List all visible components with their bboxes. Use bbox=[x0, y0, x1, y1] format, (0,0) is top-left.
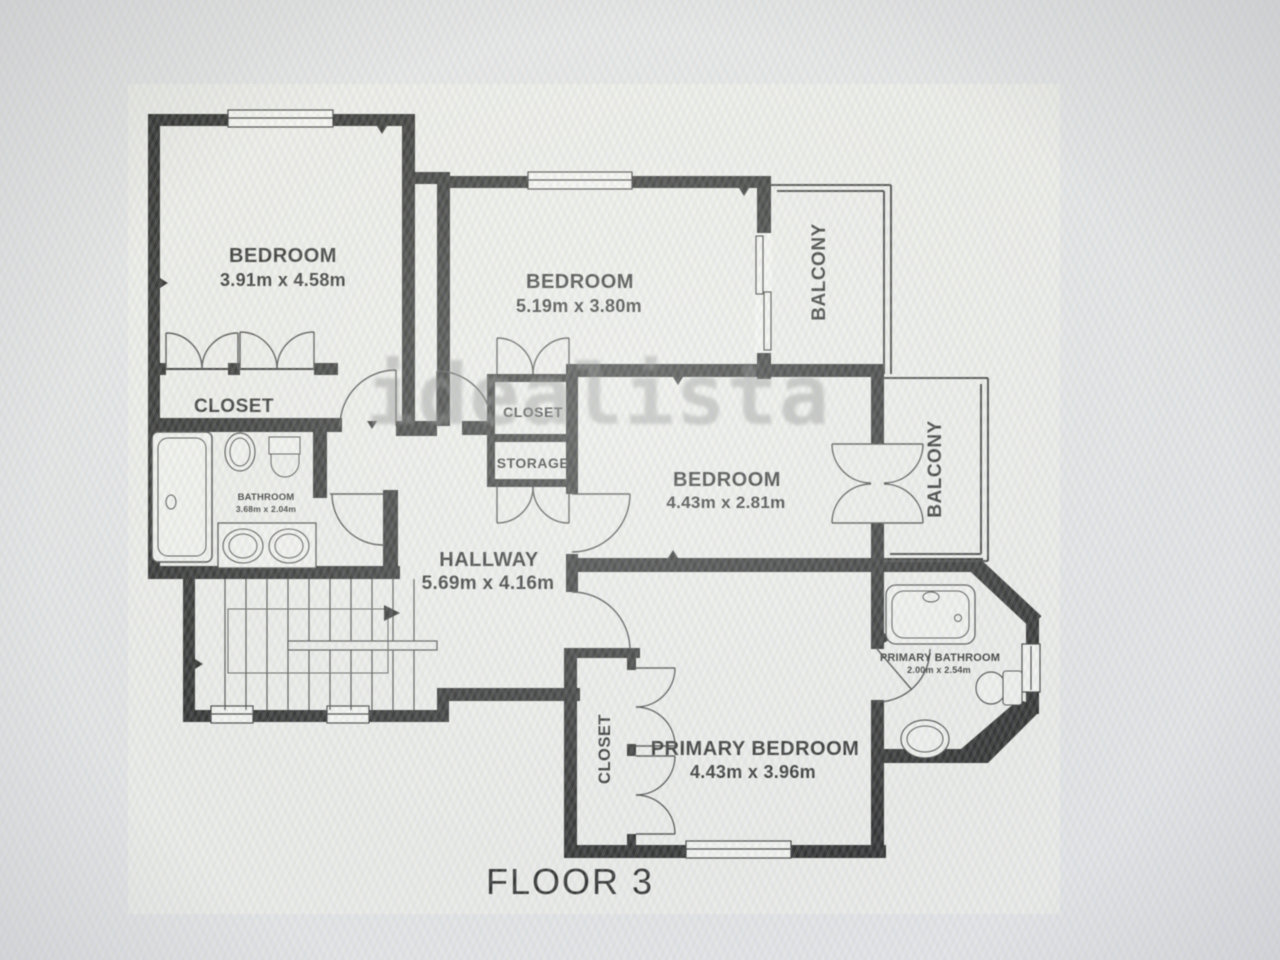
storage-label: STORAGE bbox=[497, 455, 569, 471]
primary-bathroom-label: PRIMARY BATHROOM bbox=[880, 652, 1000, 664]
primary-sink bbox=[901, 720, 949, 758]
primary-bedroom-dims: 4.43m x 3.96m bbox=[690, 762, 816, 782]
hallway-label: HALLWAY bbox=[439, 549, 539, 571]
window-stairs-2 bbox=[327, 706, 369, 723]
closet-left-label: CLOSET bbox=[194, 396, 274, 417]
closet-primary-label: CLOSET bbox=[596, 714, 614, 784]
bedroom1-label: BEDROOM bbox=[229, 245, 337, 267]
balcony-right-label: BALCONY bbox=[925, 420, 946, 517]
double-sink-vanity bbox=[218, 523, 316, 568]
sliding-door-balcony bbox=[755, 233, 772, 353]
primary-bathroom-dims: 2.00m x 2.54m bbox=[907, 665, 971, 675]
floor-plan-svg: BEDROOM 3.91m x 4.58m BEDROOM 5.19m x 3.… bbox=[0, 0, 1280, 960]
bathroom-dims: 3.68m x 2.04m bbox=[236, 504, 296, 514]
bathroom-label: BATHROOM bbox=[238, 492, 295, 503]
window-stairs-1 bbox=[211, 706, 253, 723]
bedroom3-dims: 4.43m x 2.81m bbox=[666, 493, 785, 512]
floor-label: FLOOR 3 bbox=[486, 861, 654, 902]
bathtub bbox=[152, 432, 212, 562]
bedroom1-dims: 3.91m x 4.58m bbox=[220, 270, 346, 290]
window-bedroom2 bbox=[528, 172, 632, 189]
bedroom2-dims: 5.19m x 3.80m bbox=[516, 296, 642, 316]
balcony-top-label: BALCONY bbox=[809, 223, 830, 320]
primary-toilet bbox=[976, 671, 1022, 705]
bedroom2-label: BEDROOM bbox=[526, 271, 634, 293]
window-primary-bathroom bbox=[1022, 644, 1040, 692]
bedroom3-label: BEDROOM bbox=[673, 469, 781, 491]
closet-middle-label: CLOSET bbox=[503, 404, 563, 420]
primary-bathtub bbox=[886, 585, 975, 644]
hallway-dims: 5.69m x 4.16m bbox=[422, 573, 555, 594]
window-primary-bedroom bbox=[686, 841, 791, 858]
floor-plan-photo: BEDROOM 3.91m x 4.58m BEDROOM 5.19m x 3.… bbox=[0, 0, 1280, 960]
primary-bedroom-label: PRIMARY BEDROOM bbox=[651, 738, 860, 760]
window-bedroom1 bbox=[228, 110, 333, 127]
toilet bbox=[225, 433, 255, 471]
